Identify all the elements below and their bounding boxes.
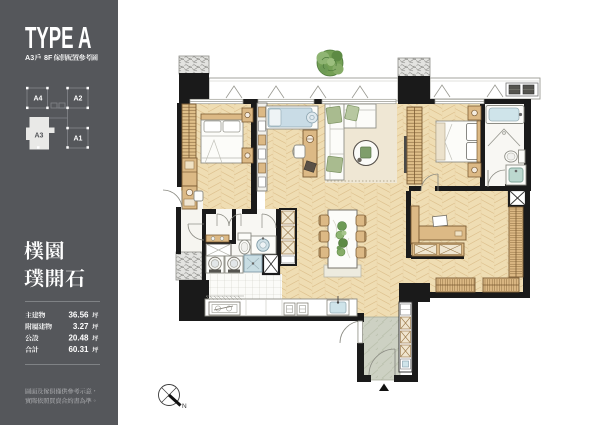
svg-text:N: N [182, 403, 187, 410]
